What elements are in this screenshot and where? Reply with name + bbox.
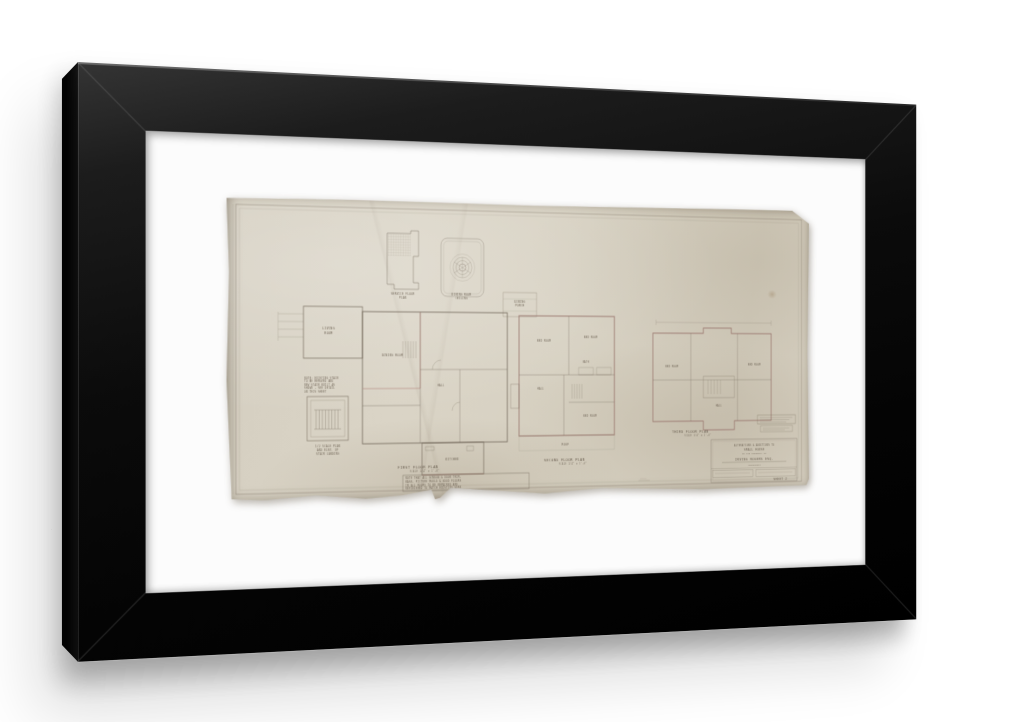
stair-detail-label: 1/2 SCALE PLAN — [315, 444, 340, 448]
sheet-number: SHEET 2 — [774, 477, 788, 481]
first-floor-plan: LIVING ROOM DINING ROOM HALL KITCHEN FIR… — [278, 306, 529, 494]
dining-room-label: DINING ROOM — [382, 353, 403, 357]
second-floor-title: SECOND FLOOR PLAN — [544, 457, 585, 462]
service-floor-label-2: PLAN — [399, 296, 406, 300]
floor-plan-drawing: SERVICE FLOOR PLAN — [227, 194, 809, 504]
frame-miter-joint — [865, 564, 917, 620]
bed-room-label: BED ROOM — [665, 365, 678, 369]
drawing-sheet-wrap: SERVICE FLOOR PLAN — [227, 194, 809, 504]
kitchen-label: KITCHEN — [446, 457, 459, 461]
title-block: ALTERATIONS & ADDITIONS TO SMALL HOUSE O… — [711, 438, 797, 482]
bed-room-label: BED ROOM — [584, 335, 598, 339]
hall-label: HALL — [716, 404, 722, 408]
title-block-line3: ON THE PROPERTY OF — [742, 453, 767, 456]
first-floor-scale: SCALE 1/4" = 1'-0" — [410, 469, 440, 473]
service-floor-detail: SERVICE FLOOR PLAN — [387, 230, 418, 300]
dining-porch: DINING PORCH — [503, 292, 536, 316]
hall-label: HALL — [438, 384, 445, 388]
bed-room-label: BED ROOM — [748, 363, 761, 367]
general-notes-box: NOTE THAT ALL WINDOW & DOOR TRIM, BASE, … — [403, 473, 529, 492]
first-floor-title: FIRST FLOOR PLAN — [398, 464, 439, 470]
third-floor-scale: SCALE 1/4" = 1'-0" — [685, 434, 712, 438]
bath-label: BATH — [583, 360, 589, 364]
frame-miter-joint — [865, 105, 917, 161]
framed-print-mockup: SERVICE FLOOR PLAN — [78, 62, 916, 662]
living-room-label-2: ROOM — [324, 331, 332, 335]
second-floor-plan: BED ROOM BED ROOM BATH HALL BED ROOM ROO… — [511, 316, 615, 468]
frame-side-face — [62, 62, 78, 662]
third-floor-plan: BED ROOM BED ROOM HALL THIRD FLOOR PLAN … — [653, 320, 771, 439]
date-scribble — [639, 479, 650, 481]
stair-detail-label-2: AND ELEV. OF — [317, 448, 339, 452]
drawing-sheet: SERVICE FLOOR PLAN — [227, 194, 809, 504]
stair-landing-detail: NOTE: EXISTING STAIR TO BE REMOVED AND N… — [304, 376, 348, 456]
dining-porch-label-2: PORCH — [515, 304, 524, 308]
frame-miter-joint — [77, 62, 146, 132]
title-block-line4: IRVING ROGERS ESQ. — [735, 456, 774, 461]
title-block-line1: ALTERATIONS & ADDITIONS TO — [734, 443, 774, 447]
bed-room-label: BED ROOM — [537, 339, 551, 343]
picture-frame: SERVICE FLOOR PLAN — [78, 62, 916, 662]
stair-detail-label-3: STAIR LANDING — [316, 452, 339, 456]
mat-board: SERVICE FLOOR PLAN — [146, 131, 866, 594]
page-background: SERVICE FLOOR PLAN — [0, 0, 1024, 722]
title-block-line2: SMALL HOUSE — [744, 448, 765, 452]
stair-note-line: ON THIS SHEET — [304, 390, 326, 394]
third-floor-title: THIRD FLOOR PLAN — [672, 429, 709, 434]
ceiling-detail: DINING ROOM CEILING — [441, 238, 484, 300]
roof-label: ROOF — [562, 443, 569, 447]
bed-room-label: BED ROOM — [583, 414, 597, 418]
ceiling-detail-label-2: CEILING — [455, 296, 467, 300]
frame-miter-joint — [77, 592, 146, 662]
second-floor-scale: SCALE 1/4" = 1'-0" — [559, 462, 587, 466]
approval-stamp — [757, 415, 795, 432]
living-room-label: LIVING — [322, 326, 334, 330]
hall-label: HALL — [537, 387, 544, 391]
title-block-line5: ARCHITECT — [748, 464, 761, 467]
